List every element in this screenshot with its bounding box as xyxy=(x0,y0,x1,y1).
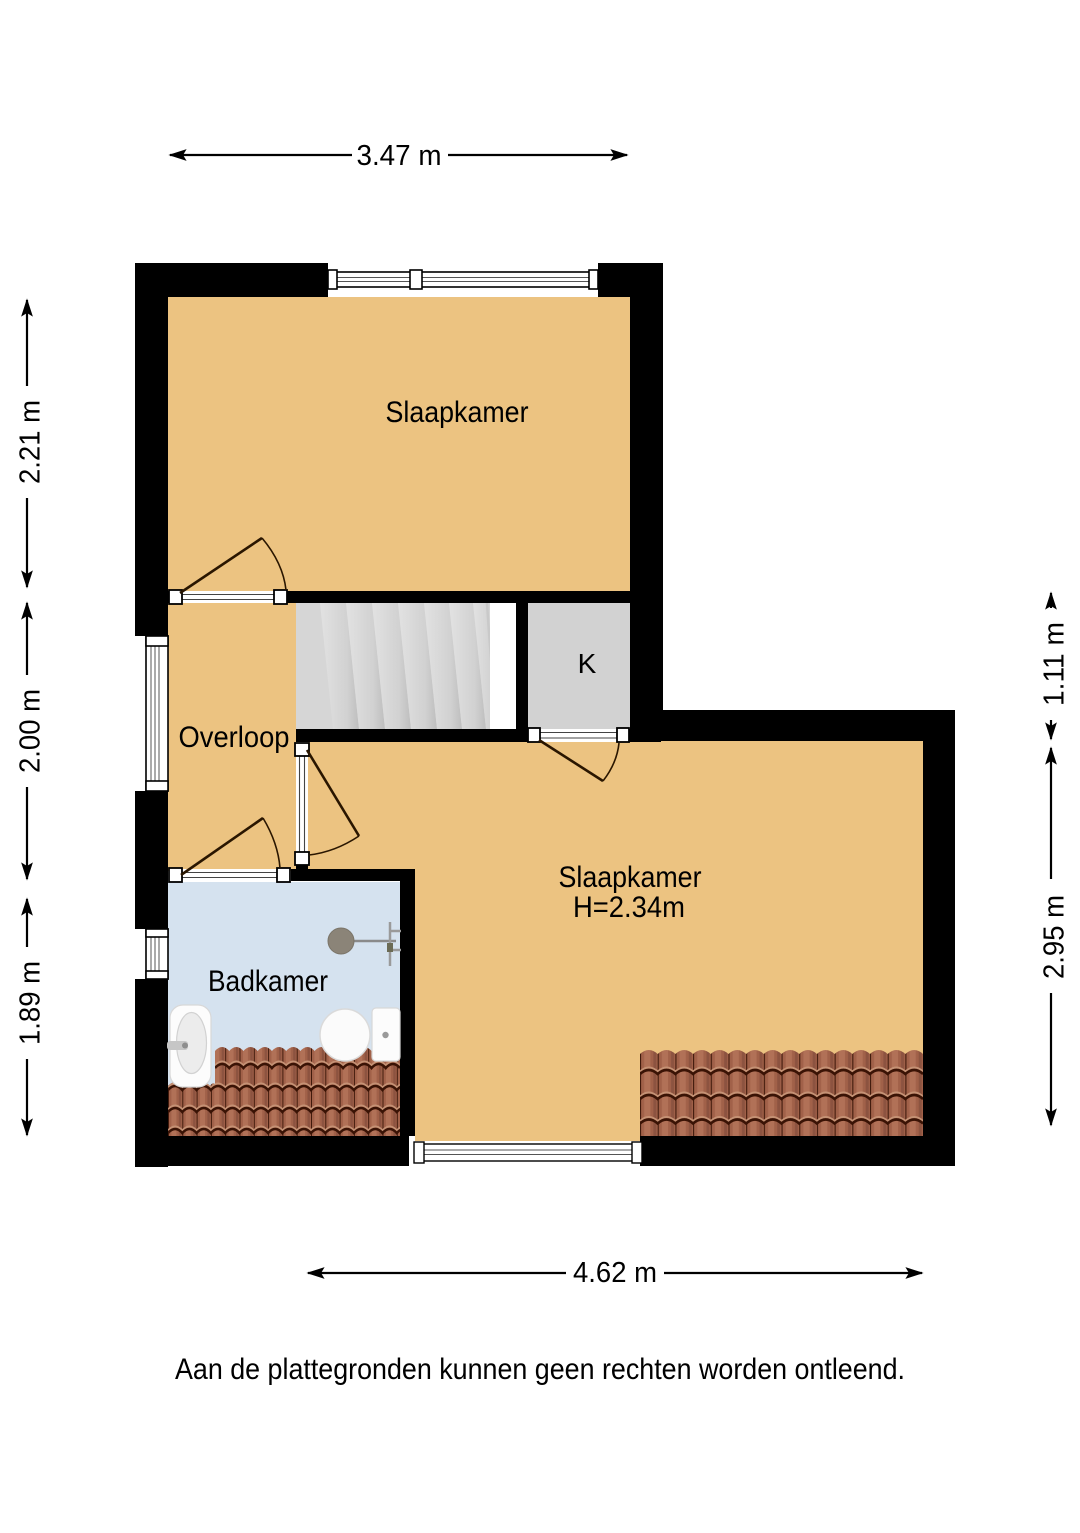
svg-text:K: K xyxy=(578,648,597,679)
svg-text:3.47 m: 3.47 m xyxy=(357,140,442,172)
svg-text:Overloop: Overloop xyxy=(179,721,290,754)
svg-text:H=2.34m: H=2.34m xyxy=(573,891,685,924)
svg-text:2.21 m: 2.21 m xyxy=(15,400,47,484)
svg-text:Slaapkamer: Slaapkamer xyxy=(386,396,529,429)
svg-text:1.11 m: 1.11 m xyxy=(1039,622,1071,706)
svg-text:1.89 m: 1.89 m xyxy=(15,961,47,1045)
svg-text:Aan de plattegronden kunnen ge: Aan de plattegronden kunnen geen rechten… xyxy=(175,1353,905,1386)
svg-text:Slaapkamer: Slaapkamer xyxy=(559,861,702,894)
svg-text:2.95 m: 2.95 m xyxy=(1039,895,1071,979)
svg-text:Badkamer: Badkamer xyxy=(208,965,328,998)
svg-text:2.00 m: 2.00 m xyxy=(15,689,47,773)
svg-text:4.62 m: 4.62 m xyxy=(573,1257,657,1289)
